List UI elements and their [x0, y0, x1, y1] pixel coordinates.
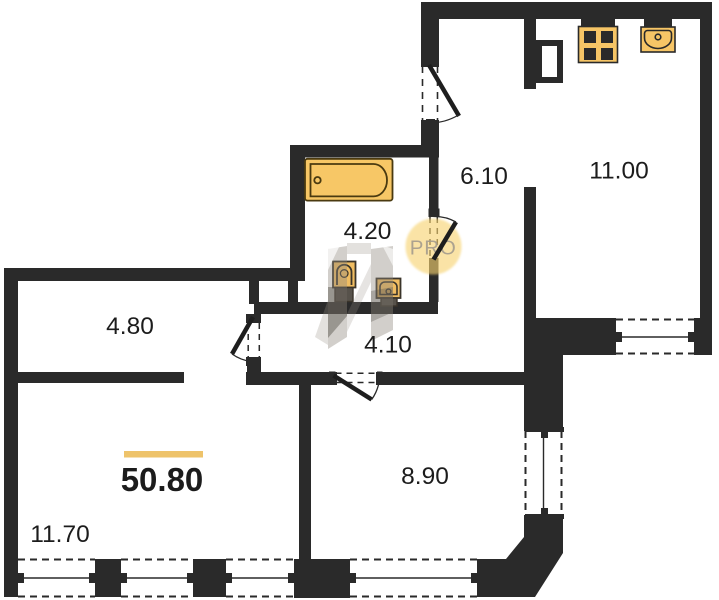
svg-text:11.00: 11.00	[589, 158, 649, 185]
svg-text:50.80: 50.80	[121, 461, 204, 498]
svg-text:4.80: 4.80	[106, 313, 154, 340]
svg-text:8.90: 8.90	[401, 463, 449, 490]
svg-text:6.10: 6.10	[460, 163, 508, 190]
svg-text:11.70: 11.70	[30, 521, 90, 548]
svg-text:4.10: 4.10	[364, 332, 412, 359]
svg-text:4.20: 4.20	[344, 218, 392, 245]
